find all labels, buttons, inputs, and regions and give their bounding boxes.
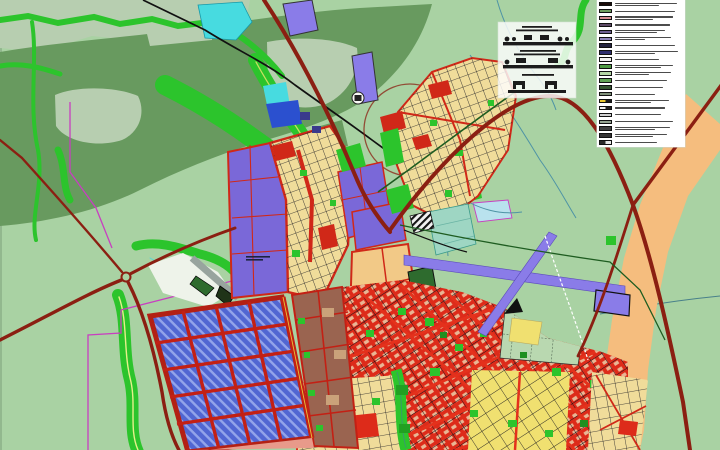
legend-entry-11 bbox=[599, 70, 683, 76]
legend-entry-18 bbox=[599, 119, 683, 125]
master-plan-screenshot bbox=[0, 0, 720, 450]
legend-swatch bbox=[599, 2, 612, 7]
legend-swatch bbox=[599, 120, 612, 125]
landmark-icon bbox=[352, 92, 364, 104]
legend-entry-4 bbox=[599, 22, 683, 28]
legend-swatch bbox=[599, 126, 612, 131]
legend-entry-text bbox=[615, 121, 683, 122]
legend-entry-text bbox=[615, 11, 683, 12]
district-east-blocks bbox=[588, 372, 648, 450]
legend-entry-text bbox=[615, 30, 683, 33]
legend-entry-text bbox=[615, 134, 683, 137]
legend-entry-7 bbox=[599, 43, 683, 49]
legend-entry-text bbox=[615, 65, 683, 68]
legend-entry-1 bbox=[599, 1, 683, 7]
legend-entry-text bbox=[615, 3, 683, 6]
legend-entry-text bbox=[615, 45, 683, 46]
legend-entry-10 bbox=[599, 63, 683, 69]
legend-swatch bbox=[599, 43, 612, 48]
legend-entry-19 bbox=[599, 126, 683, 132]
legend-entry-text bbox=[615, 114, 683, 115]
legend-entry-3 bbox=[599, 15, 683, 21]
legend-entry-text bbox=[615, 127, 683, 130]
legend-swatch bbox=[599, 92, 612, 97]
legend-swatch bbox=[599, 71, 612, 76]
legend-entry-16 bbox=[599, 105, 683, 111]
legend-entry-text bbox=[615, 87, 683, 88]
legend-entry-17 bbox=[599, 112, 683, 118]
legend-entry-6 bbox=[599, 36, 683, 42]
roundabout bbox=[122, 273, 131, 282]
legend-swatch bbox=[599, 85, 612, 90]
legend-entry-text bbox=[615, 51, 683, 54]
legend-swatch bbox=[599, 16, 612, 21]
legend-entry-text bbox=[615, 100, 683, 103]
legend-swatch bbox=[599, 57, 612, 62]
legend-entry-text bbox=[615, 107, 683, 108]
legend-entry-text bbox=[615, 142, 683, 143]
legend-swatch bbox=[599, 133, 612, 138]
legend-entry-text bbox=[615, 59, 683, 60]
legend-entry-text bbox=[615, 72, 683, 75]
legend-entry-text bbox=[615, 16, 683, 19]
legend-swatch bbox=[599, 37, 612, 42]
legend-entry-text bbox=[615, 80, 683, 81]
legend-entry-14 bbox=[599, 91, 683, 97]
legend-entry-text bbox=[615, 94, 683, 95]
legend-swatch bbox=[599, 64, 612, 69]
legend-swatch bbox=[599, 50, 612, 55]
legend-entry-15 bbox=[599, 98, 683, 104]
legend-entry-5 bbox=[599, 29, 683, 35]
legend-entry-2 bbox=[599, 8, 683, 14]
legend-entry-21 bbox=[599, 139, 683, 145]
legend-entry-12 bbox=[599, 77, 683, 83]
legend-swatch bbox=[599, 99, 612, 104]
legend-panel bbox=[597, 0, 685, 147]
legend-entry-text bbox=[615, 24, 683, 25]
legend-swatch bbox=[599, 113, 612, 118]
legend-swatch bbox=[599, 23, 612, 28]
legend-entry-13 bbox=[599, 84, 683, 90]
legend-swatch bbox=[599, 9, 612, 14]
legend-entry-8 bbox=[599, 49, 683, 55]
legend-swatch bbox=[599, 106, 612, 111]
pond bbox=[266, 100, 302, 128]
cross-section-panel bbox=[498, 22, 576, 98]
legend-swatch bbox=[599, 30, 612, 35]
legend-swatch bbox=[599, 78, 612, 83]
legend-entry-9 bbox=[599, 56, 683, 62]
legend-entry-text bbox=[615, 37, 683, 40]
legend-swatch bbox=[599, 140, 612, 145]
legend-entry-20 bbox=[599, 133, 683, 139]
